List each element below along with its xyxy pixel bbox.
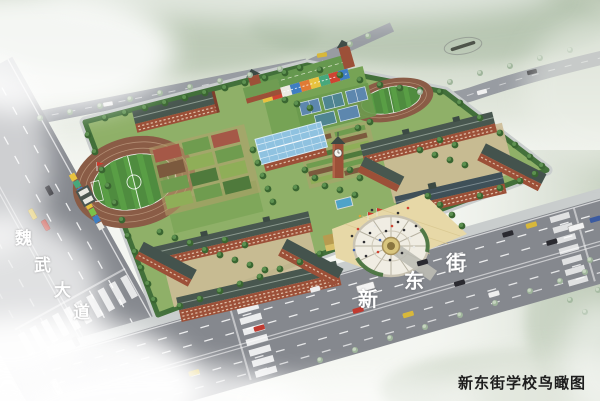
- street-label-char: 新: [358, 283, 378, 312]
- street-label-char: 东: [404, 265, 424, 294]
- street-label-char: 道: [73, 298, 90, 323]
- campus-scene: [0, 0, 600, 401]
- street-label-char: 街: [446, 247, 466, 276]
- street-label-char: 魏: [15, 224, 32, 249]
- aerial-rendering: 魏 武 大 道 新 东 街 新东街学校鸟瞰图: [0, 0, 600, 401]
- image-caption: 新东街学校鸟瞰图: [458, 372, 586, 393]
- street-label-char: 武: [34, 251, 51, 276]
- street-label-char: 大: [54, 276, 71, 301]
